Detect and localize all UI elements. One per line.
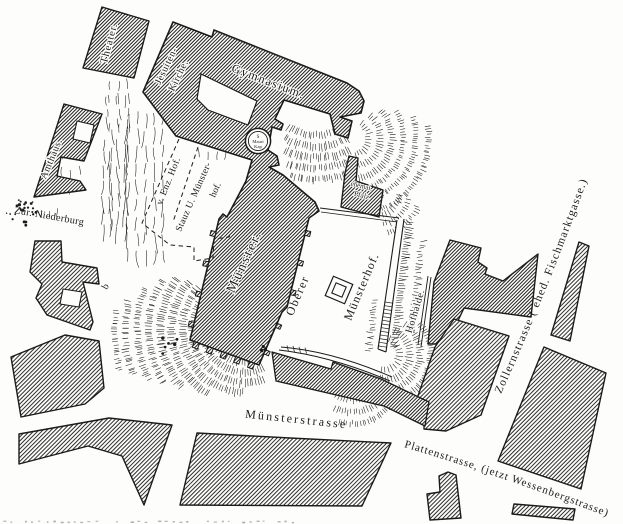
svg-text:Kap: Kap (254, 144, 262, 149)
